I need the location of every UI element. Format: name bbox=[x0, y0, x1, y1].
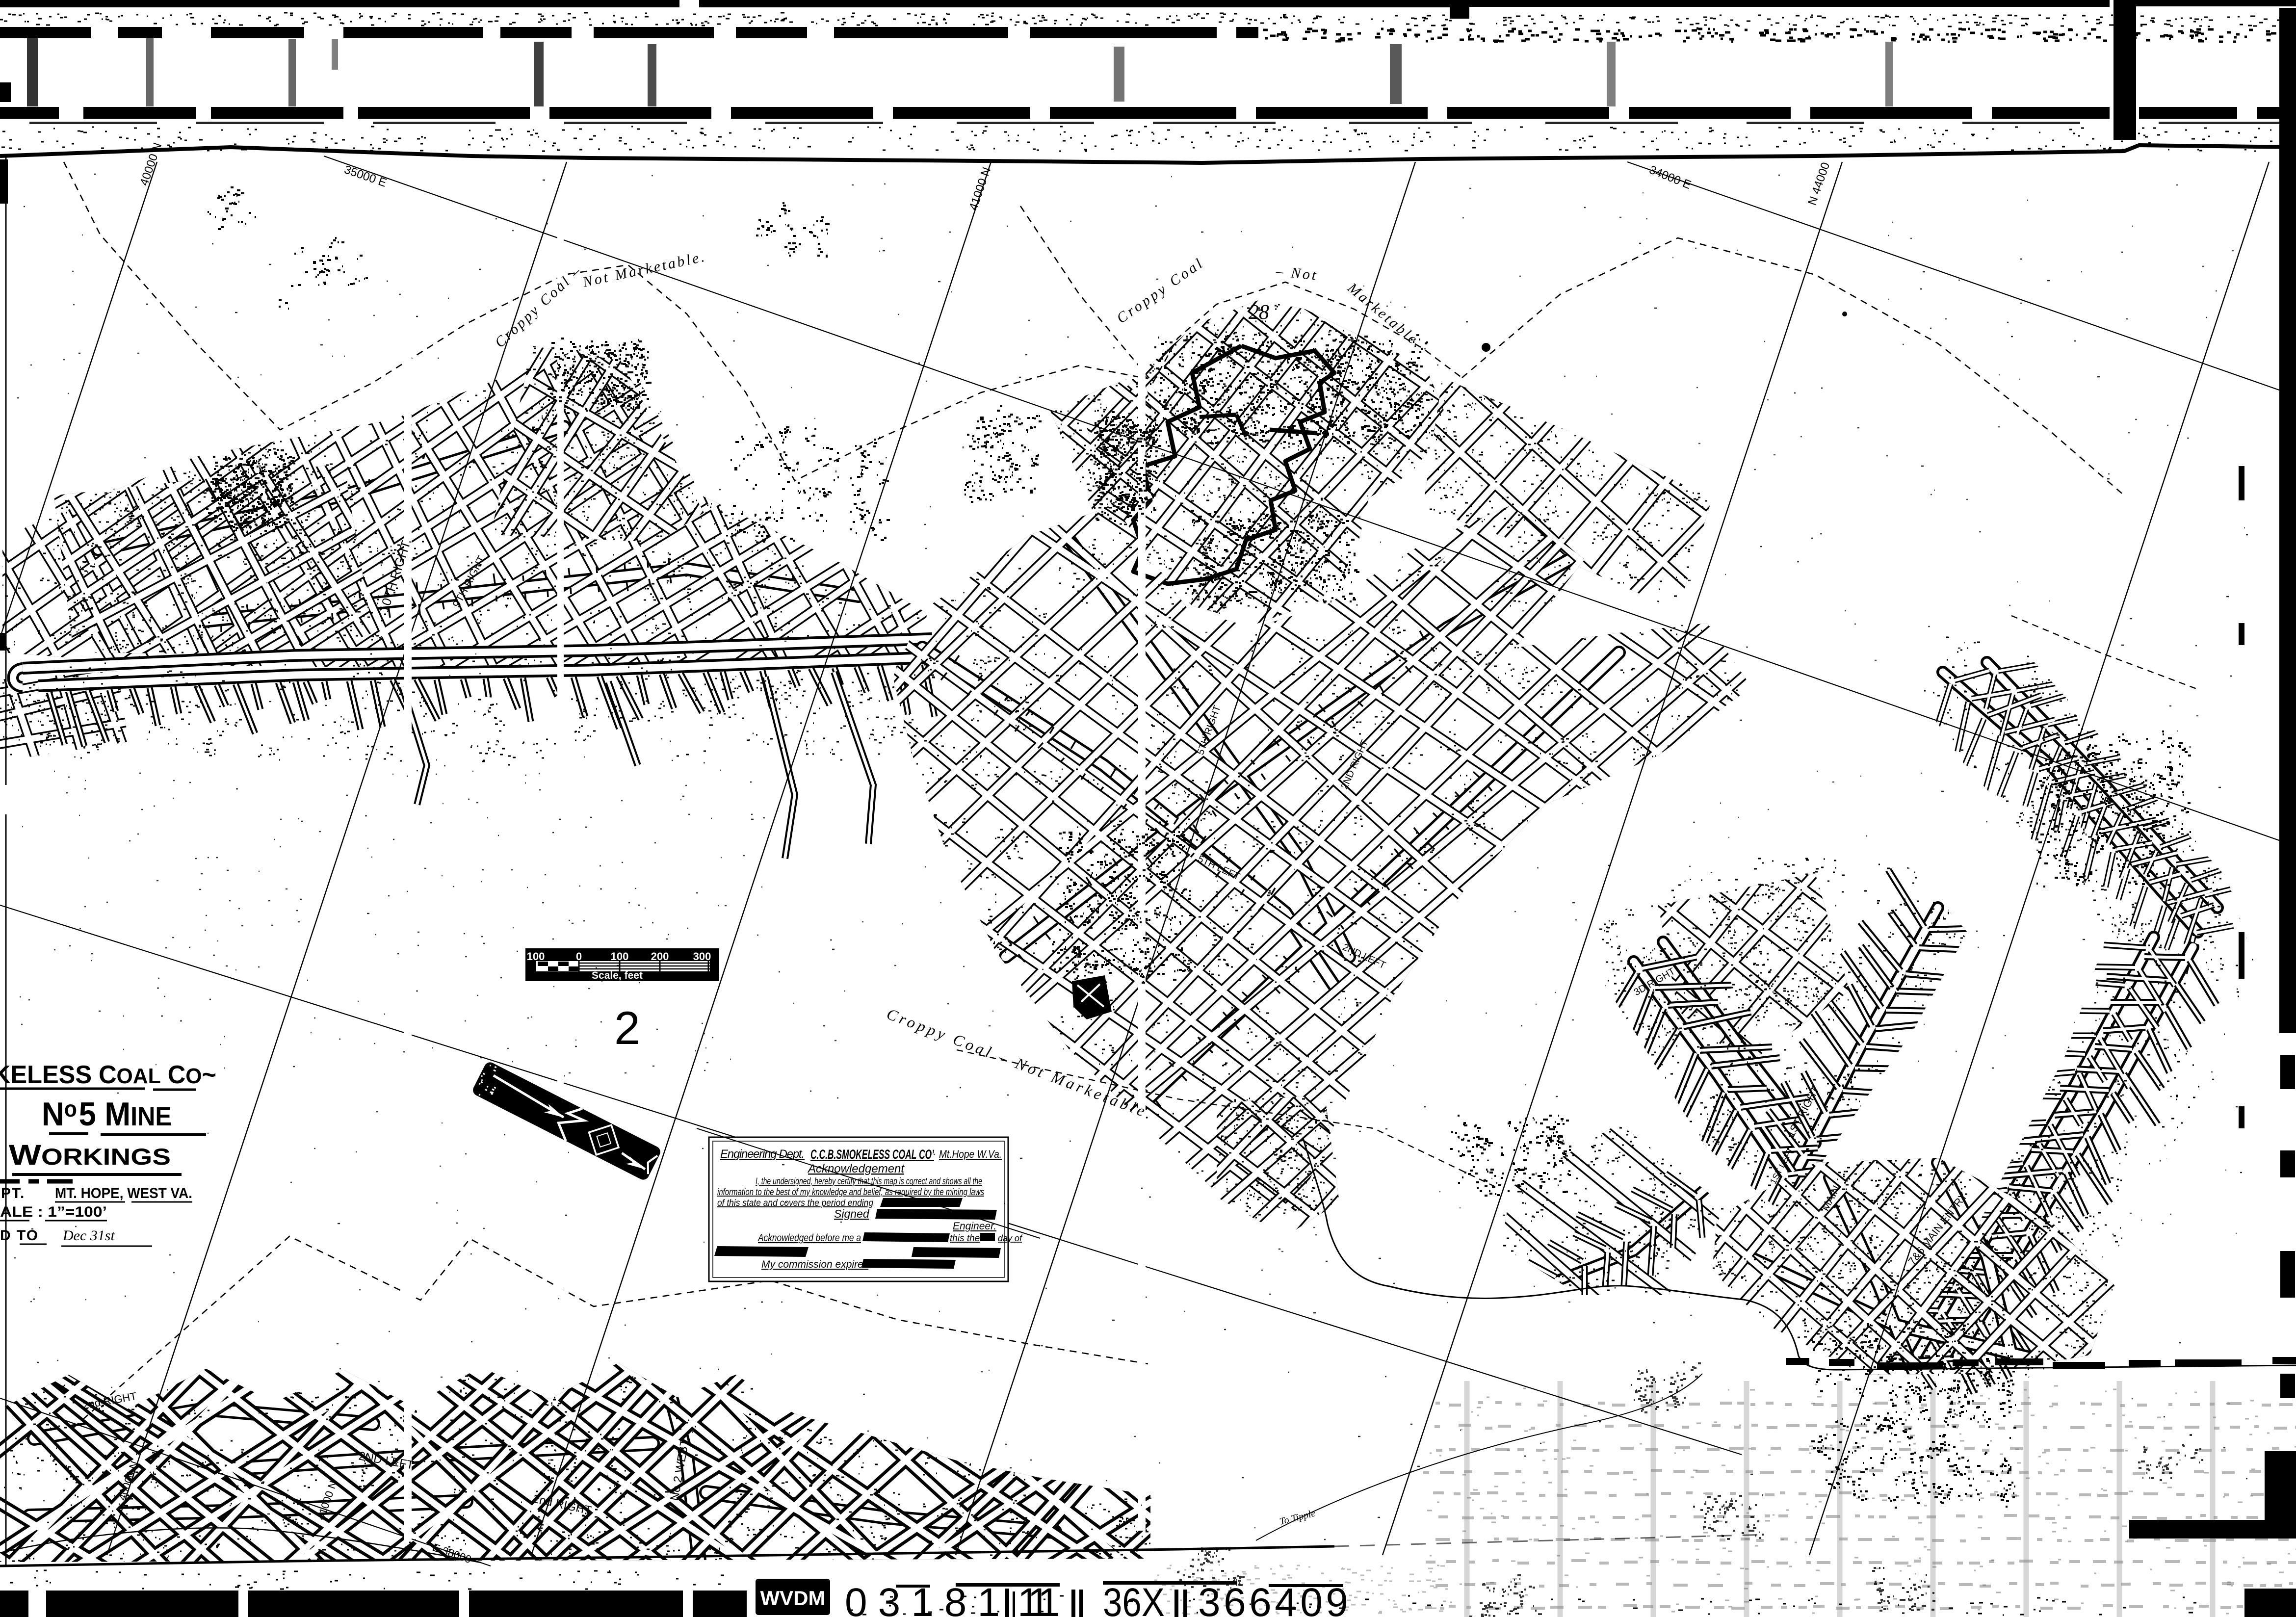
svg-text:2: 2 bbox=[614, 1002, 640, 1054]
svg-text:PT.: PT. bbox=[1, 1185, 25, 1201]
svg-text:ALE : 1”=100’: ALE : 1”=100’ bbox=[0, 1204, 107, 1220]
svg-text:100: 100 bbox=[527, 950, 545, 963]
svg-text:My commission expires: My commission expires bbox=[761, 1259, 869, 1270]
svg-text:Scale, feet: Scale, feet bbox=[592, 970, 643, 981]
svg-text:200: 200 bbox=[651, 950, 669, 963]
svg-text:KELESS COAL CO~: KELESS COAL CO~ bbox=[0, 1061, 216, 1089]
svg-text:Mt.Hope W.Va.: Mt.Hope W.Va. bbox=[939, 1148, 1002, 1160]
svg-text:I, the undersigned, hereby cer: I, the undersigned, hereby certify that … bbox=[756, 1176, 982, 1187]
svg-text:D TO: D TO bbox=[0, 1227, 39, 1244]
svg-text:of this state and covers the p: of this state and covers the period endi… bbox=[717, 1198, 873, 1208]
svg-text:C.C.B.SMOKELESS COAL COʼ: C.C.B.SMOKELESS COAL COʼ bbox=[810, 1147, 934, 1162]
svg-text:36X: 36X bbox=[1103, 1580, 1165, 1617]
svg-text:information to the best of my: information to the best of my knowledge … bbox=[717, 1187, 984, 1198]
svg-text:Acknowledged before me a: Acknowledged before me a bbox=[757, 1232, 861, 1244]
svg-text:WORKINGS: WORKINGS bbox=[9, 1139, 171, 1171]
svg-text:MT. HOPE, WEST VA.: MT. HOPE, WEST VA. bbox=[55, 1185, 192, 1201]
svg-text:Dec 31st: Dec 31st bbox=[62, 1227, 115, 1244]
svg-text:28: 28 bbox=[1249, 301, 1269, 324]
svg-text:day of: day of bbox=[998, 1233, 1023, 1243]
svg-text:WVDM: WVDM bbox=[760, 1587, 826, 1610]
svg-text:this the: this the bbox=[950, 1233, 980, 1244]
svg-text:Signed: Signed bbox=[834, 1207, 870, 1220]
svg-text:300: 300 bbox=[693, 950, 711, 963]
svg-text:100: 100 bbox=[611, 950, 629, 963]
svg-text:0: 0 bbox=[576, 950, 582, 963]
